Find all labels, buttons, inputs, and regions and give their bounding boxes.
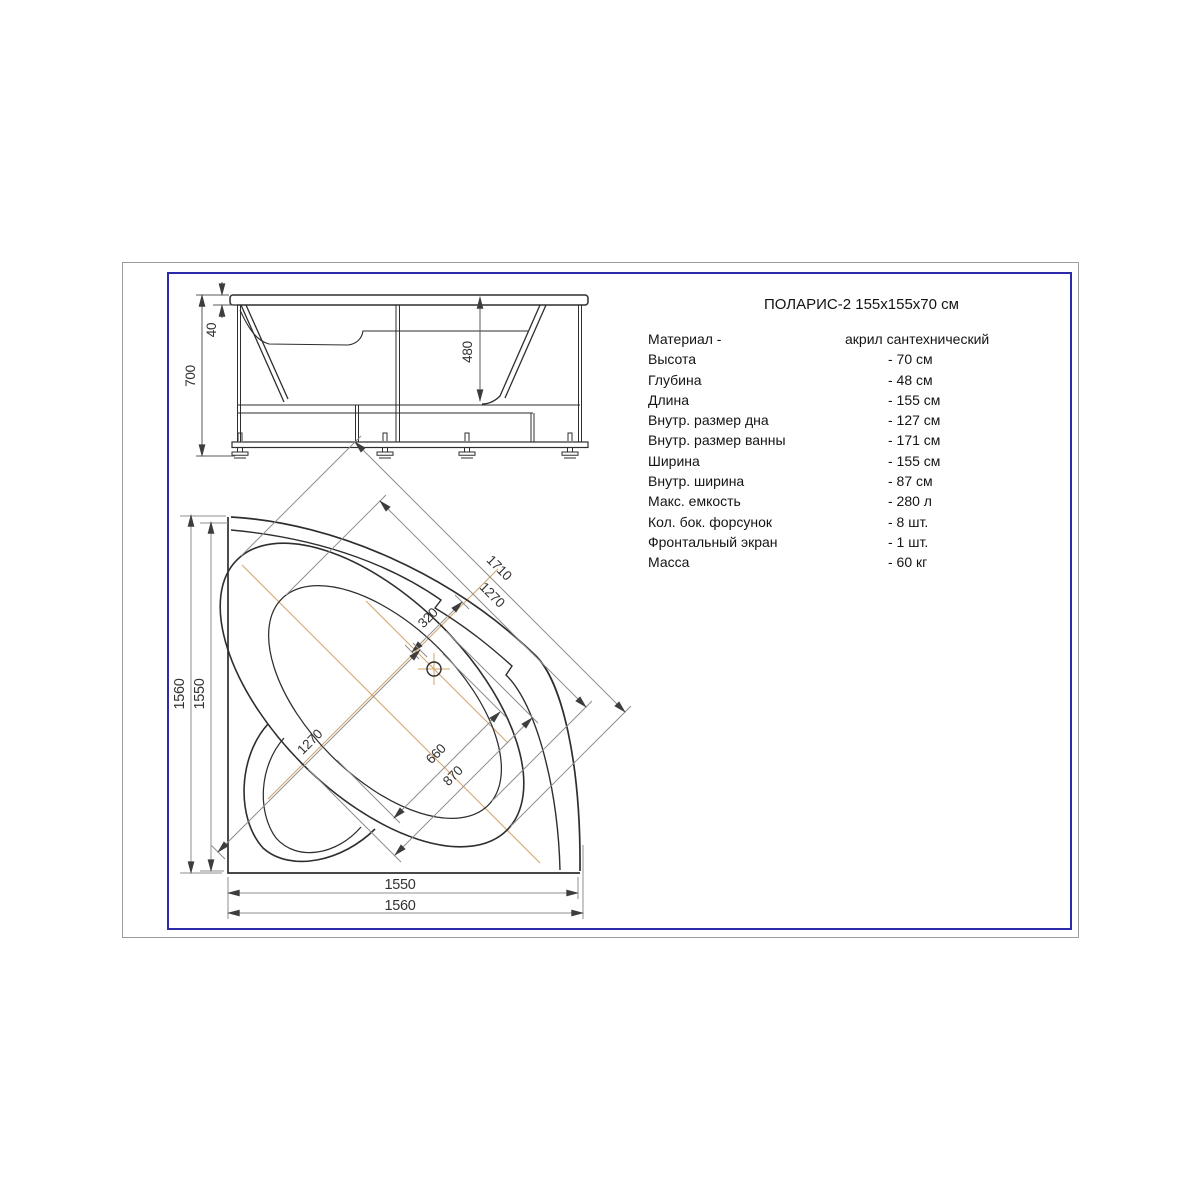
spec-row: Внутр. размер дна - 127 см <box>648 412 1048 432</box>
spec-label: Масса <box>648 554 689 570</box>
side-frame-posts <box>238 305 582 442</box>
side-frame-rails <box>238 405 580 442</box>
spec-value: - 60 кг <box>888 554 927 570</box>
spec-row: Ширина - 155 см <box>648 453 1048 473</box>
side-bottom-rail <box>232 442 588 448</box>
bathtub-drawing: 700 40 480 <box>0 0 1200 1200</box>
spec-value: - 171 см <box>888 432 940 448</box>
dim-left-outer: 1560 <box>172 678 188 709</box>
spec-label: Глубина <box>648 372 701 388</box>
spec-label: Высота <box>648 351 696 367</box>
plan-dimensions-ortho <box>180 515 583 919</box>
spec-row: Кол. бок. форсунок - 8 шт. <box>648 514 1048 534</box>
spec-label: Длина <box>648 392 689 408</box>
spec-value: - 155 см <box>888 392 940 408</box>
dim-bottom-inner: 1550 <box>384 877 415 893</box>
spec-row: Внутр. ширина - 87 см <box>648 473 1048 493</box>
dim-left-inner: 1550 <box>192 678 208 709</box>
plan-outer-edge <box>228 517 580 873</box>
spec-value: - 70 см <box>888 351 933 367</box>
side-view: 700 40 480 <box>183 282 588 458</box>
dim-floor-width: 660 <box>423 741 449 767</box>
plan-dimensions-diagonal <box>211 436 631 862</box>
spec-value: - 1 шт. <box>888 534 928 550</box>
side-tub-walls <box>241 305 546 404</box>
dim-rim-height: 40 <box>204 323 219 337</box>
spec-label: Фронтальный экран <box>648 534 778 550</box>
spec-row: Масса - 60 кг <box>648 554 1048 574</box>
spec-value: - 87 см <box>888 473 933 489</box>
dim-floor-diag: 1270 <box>294 726 325 757</box>
engineering-drawing-sheet: { "title": "ПОЛАРИС-2 155x155x70 см", "s… <box>0 0 1200 1200</box>
spec-row: Внутр. размер ванны - 171 см <box>648 432 1048 452</box>
spec-label: Макс. емкость <box>648 493 741 509</box>
spec-list: Материал - акрил сантехнический Высота -… <box>648 331 1048 575</box>
spec-value: - 48 см <box>888 372 933 388</box>
spec-value: - 155 см <box>888 453 940 469</box>
drawing-title: ПОЛАРИС-2 155x155x70 см <box>764 296 959 313</box>
spec-value: акрил сантехнический <box>845 331 989 347</box>
dim-height-total: 700 <box>183 365 198 387</box>
plan-view: 1710 1270 320 1270 660 870 1560 1550 155… <box>168 436 631 919</box>
spec-label: Внутр. размер дна <box>648 412 769 428</box>
spec-value: - 280 л <box>888 493 932 509</box>
dim-floor-length: 1270 <box>477 579 508 610</box>
side-rim <box>230 295 588 305</box>
dim-depth: 480 <box>460 341 475 363</box>
spec-row: Фронтальный экран - 1 шт. <box>648 534 1048 554</box>
spec-value: - 127 см <box>888 412 940 428</box>
side-feet <box>232 433 578 458</box>
side-bowl-edge <box>240 310 528 345</box>
spec-row: Высота - 70 см <box>648 351 1048 371</box>
spec-row: Макс. емкость - 280 л <box>648 493 1048 513</box>
spec-row: Длина - 155 см <box>648 392 1048 412</box>
spec-label: Внутр. ширина <box>648 473 744 489</box>
side-dimensions <box>196 282 480 456</box>
spec-label: Ширина <box>648 453 700 469</box>
spec-label: Кол. бок. форсунок <box>648 514 772 530</box>
dim-bottom-outer: 1560 <box>384 898 415 914</box>
spec-row: Материал - акрил сантехнический <box>648 331 1048 351</box>
spec-label: Внутр. размер ванны <box>648 432 786 448</box>
spec-value: - 8 шт. <box>888 514 928 530</box>
spec-label: Материал - <box>648 331 721 347</box>
spec-row: Глубина - 48 см <box>648 372 1048 392</box>
